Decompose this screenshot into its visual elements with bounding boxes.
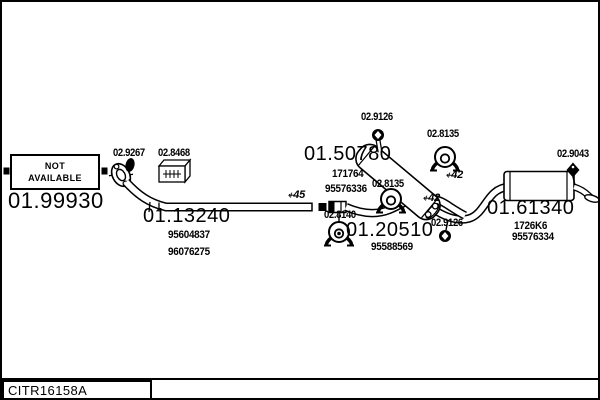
fitting-code-kit[interactable]: 02.8468 bbox=[158, 148, 190, 159]
not-available-line1: NOT bbox=[45, 160, 65, 172]
fitting-code-clamp-right[interactable]: 02.9126 bbox=[431, 218, 463, 229]
connector-square-icon bbox=[102, 168, 107, 174]
part-code-center-muffler[interactable]: 01.50780 bbox=[304, 144, 391, 164]
diameter-note: ⍅42 bbox=[445, 170, 463, 181]
drawing-code-box: CITR16158A bbox=[2, 380, 152, 400]
not-available-line2: AVAILABLE bbox=[28, 172, 82, 184]
fitting-code-hanger-upper[interactable]: 02.8135 bbox=[427, 129, 459, 140]
not-available-box: NOT AVAILABLE bbox=[10, 154, 100, 190]
fitting-code-clamp-top[interactable]: 02.9126 bbox=[361, 112, 393, 123]
oem-number: 95576334 bbox=[512, 232, 554, 243]
exhaust-parts-diagram: NOT AVAILABLE 01.99930 02.9267 02.8468 0… bbox=[0, 0, 600, 400]
tailpipe-drawing bbox=[574, 187, 600, 204]
oem-number: 95576336 bbox=[325, 184, 367, 195]
diameter-note: ⍅45 bbox=[287, 190, 305, 201]
oem-number: 95588569 bbox=[371, 242, 413, 253]
part-code-center-pipe[interactable]: 01.20510 bbox=[346, 220, 433, 240]
oem-number: 96076275 bbox=[168, 247, 210, 258]
part-code-manifold[interactable]: 01.99930 bbox=[8, 190, 104, 212]
rubber-hanger-icon bbox=[430, 147, 460, 171]
drawing-code: CITR16158A bbox=[8, 383, 87, 398]
kit-box-icon bbox=[159, 160, 190, 182]
diameter-note: ⍅42 bbox=[422, 193, 440, 204]
fitting-code-tail-mount[interactable]: 02.9043 bbox=[557, 149, 589, 160]
oval-gasket-icon bbox=[125, 158, 136, 172]
part-code-front-pipe[interactable]: 01.13240 bbox=[143, 206, 230, 226]
connector-square-icon bbox=[4, 168, 9, 174]
part-code-rear-muffler[interactable]: 01.61340 bbox=[487, 198, 574, 218]
oem-number: 171764 bbox=[332, 169, 363, 180]
oem-number: 95604837 bbox=[168, 230, 210, 241]
fitting-code-gasket[interactable]: 02.9267 bbox=[113, 148, 145, 159]
fitting-code-hanger-lower[interactable]: 02.8135 bbox=[372, 179, 404, 190]
